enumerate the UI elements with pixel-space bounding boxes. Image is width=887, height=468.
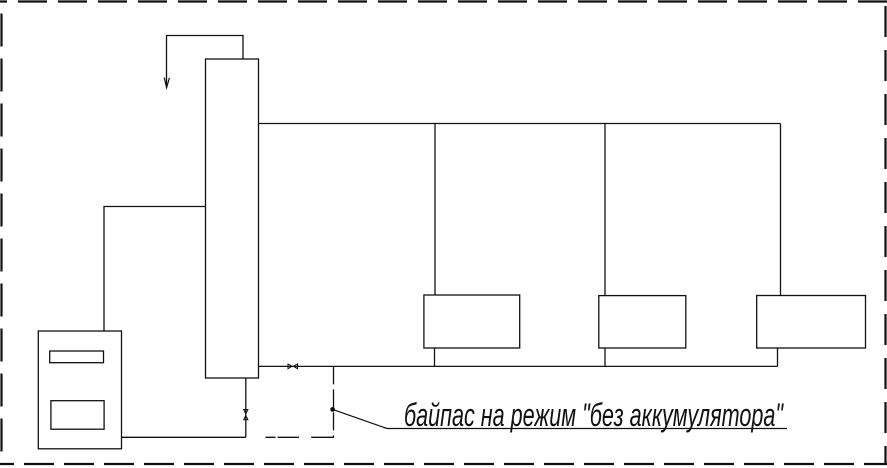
svg-text:байпас на режим "без аккумулят: байпас на режим "без аккумулятора"	[404, 397, 784, 433]
